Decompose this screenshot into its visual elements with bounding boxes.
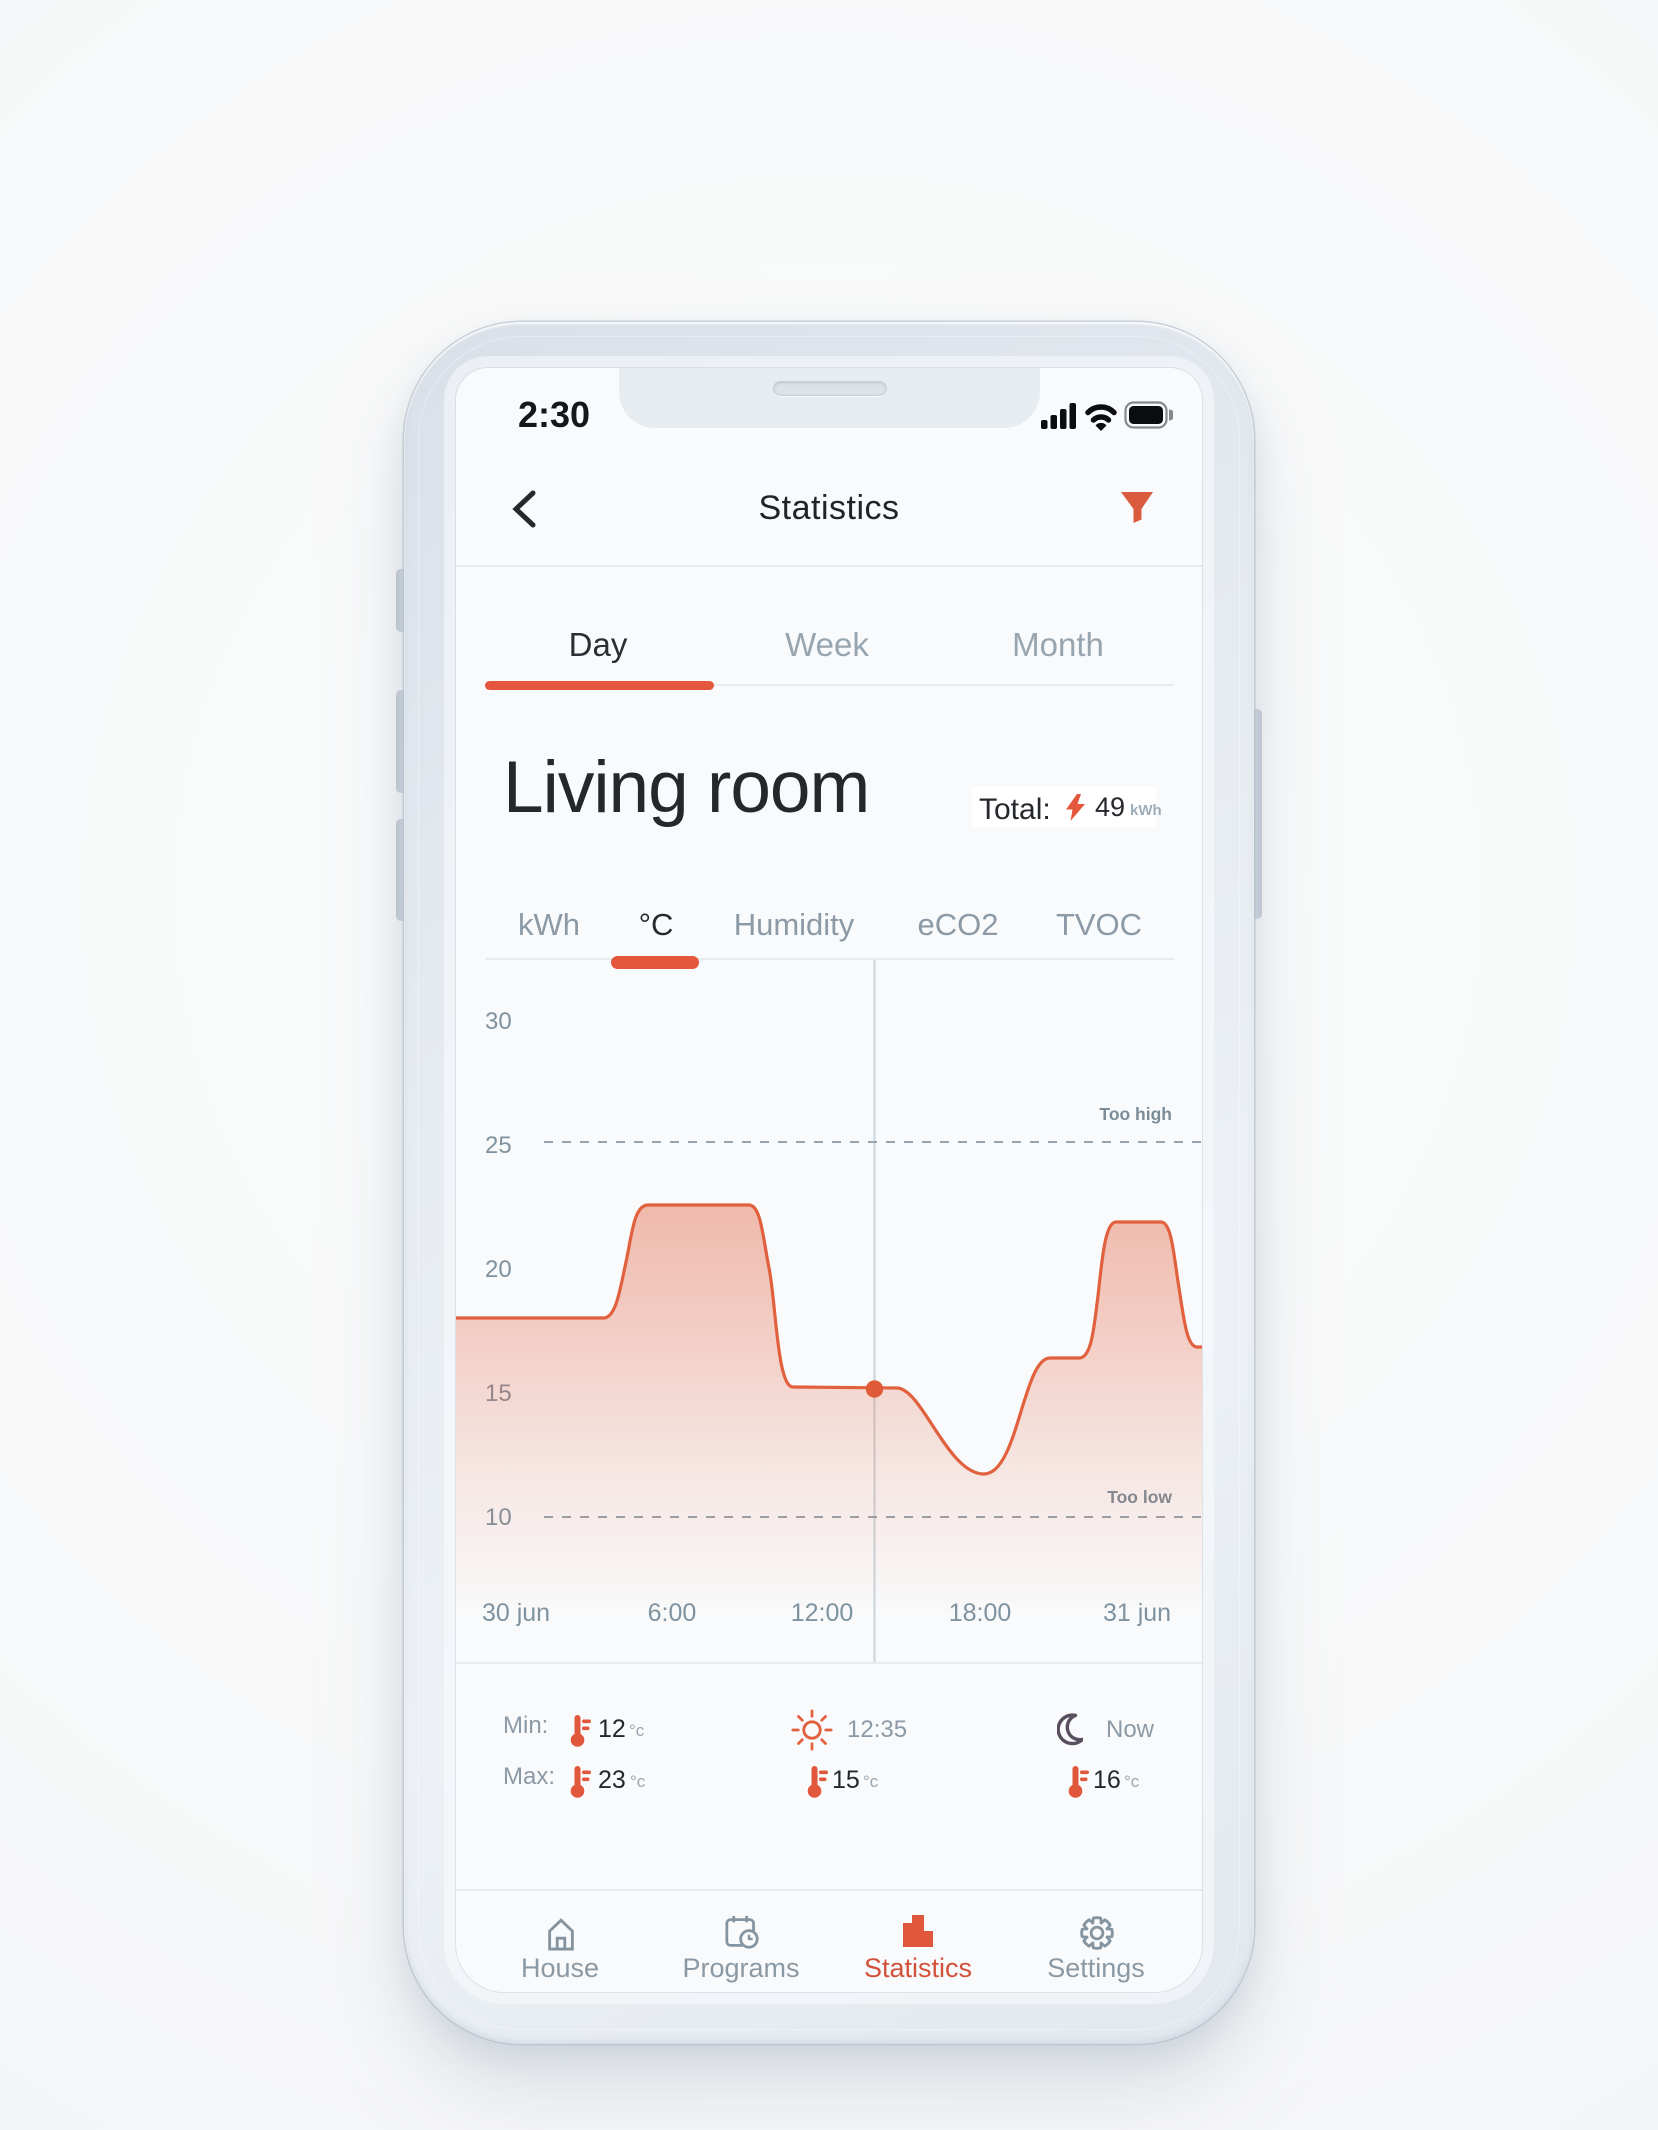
svg-text:6:00: 6:00	[648, 1599, 697, 1627]
svg-text:10: 10	[485, 1504, 512, 1531]
svg-text:31 jun: 31 jun	[1103, 1599, 1171, 1627]
svg-text:20: 20	[485, 1256, 512, 1283]
svg-text:Too high: Too high	[1099, 1104, 1172, 1124]
svg-text:18:00: 18:00	[949, 1599, 1012, 1627]
svg-text:12:00: 12:00	[791, 1599, 854, 1627]
svg-text:25: 25	[485, 1132, 512, 1159]
svg-text:15: 15	[485, 1380, 512, 1407]
svg-text:30 jun: 30 jun	[482, 1599, 550, 1627]
svg-text:Too low: Too low	[1107, 1487, 1172, 1507]
svg-text:30: 30	[485, 1008, 512, 1035]
